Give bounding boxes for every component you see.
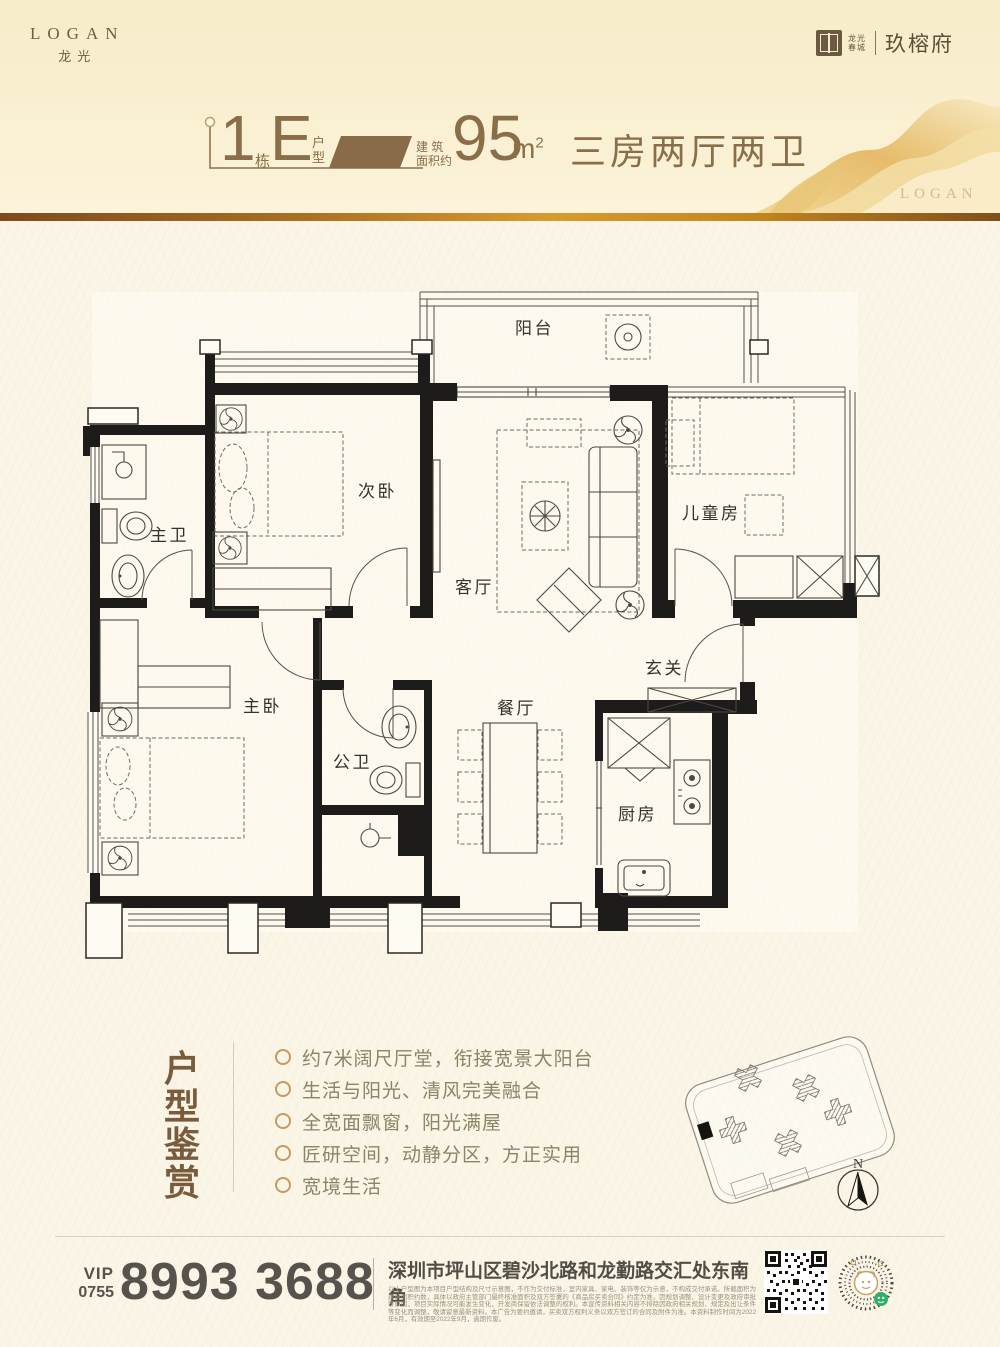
room-label-living-room: 客厅 (455, 578, 494, 597)
title-decorations (206, 118, 424, 169)
seal-icon (816, 30, 842, 56)
wechat-icon (874, 1292, 888, 1306)
brand-name-cn: 龙光 (30, 46, 125, 65)
brand-name-en: LOGAN (30, 24, 125, 44)
qr-finder-top-right (811, 1251, 827, 1267)
room-label-master-bedroom: 主卧 (243, 697, 282, 716)
compass-north-label: N (853, 1157, 863, 1172)
room-label-kids-room: 儿童房 (682, 504, 741, 523)
project-logo: 龙光 春城 玖榕府 (816, 28, 954, 58)
qr-finder-bottom-left (765, 1297, 781, 1313)
room-label-entry: 玄关 (645, 659, 684, 678)
room-label-kitchen: 厨房 (618, 805, 657, 824)
floorplan: 阳台 次卧 主卫 客厅 儿童房 玄关 主卧 公卫 餐厅 厨房 (83, 292, 879, 958)
header-watermark: LOGAN (900, 186, 978, 203)
project-name: 玖榕府 (885, 28, 954, 58)
seal-text: 龙光 春城 (848, 34, 866, 52)
site-plan: N (680, 1032, 899, 1210)
room-label-master-bath: 主卫 (150, 526, 189, 545)
room-label-guest-bath: 公卫 (333, 753, 372, 772)
brand-logo: LOGAN 龙光 (30, 24, 125, 65)
qr-finder-top-left (765, 1251, 781, 1267)
logo-divider (875, 31, 876, 55)
room-label-dining: 餐厅 (497, 699, 536, 718)
qr-code (764, 1250, 828, 1314)
room-label-balcony: 阳台 (515, 319, 554, 338)
room-label-second-bedroom: 次卧 (358, 482, 397, 501)
page-drawing: 阳台 次卧 主卫 客厅 儿童房 玄关 主卧 公卫 餐厅 厨房 (0, 0, 1000, 1347)
miniprogram-code (840, 1257, 892, 1309)
